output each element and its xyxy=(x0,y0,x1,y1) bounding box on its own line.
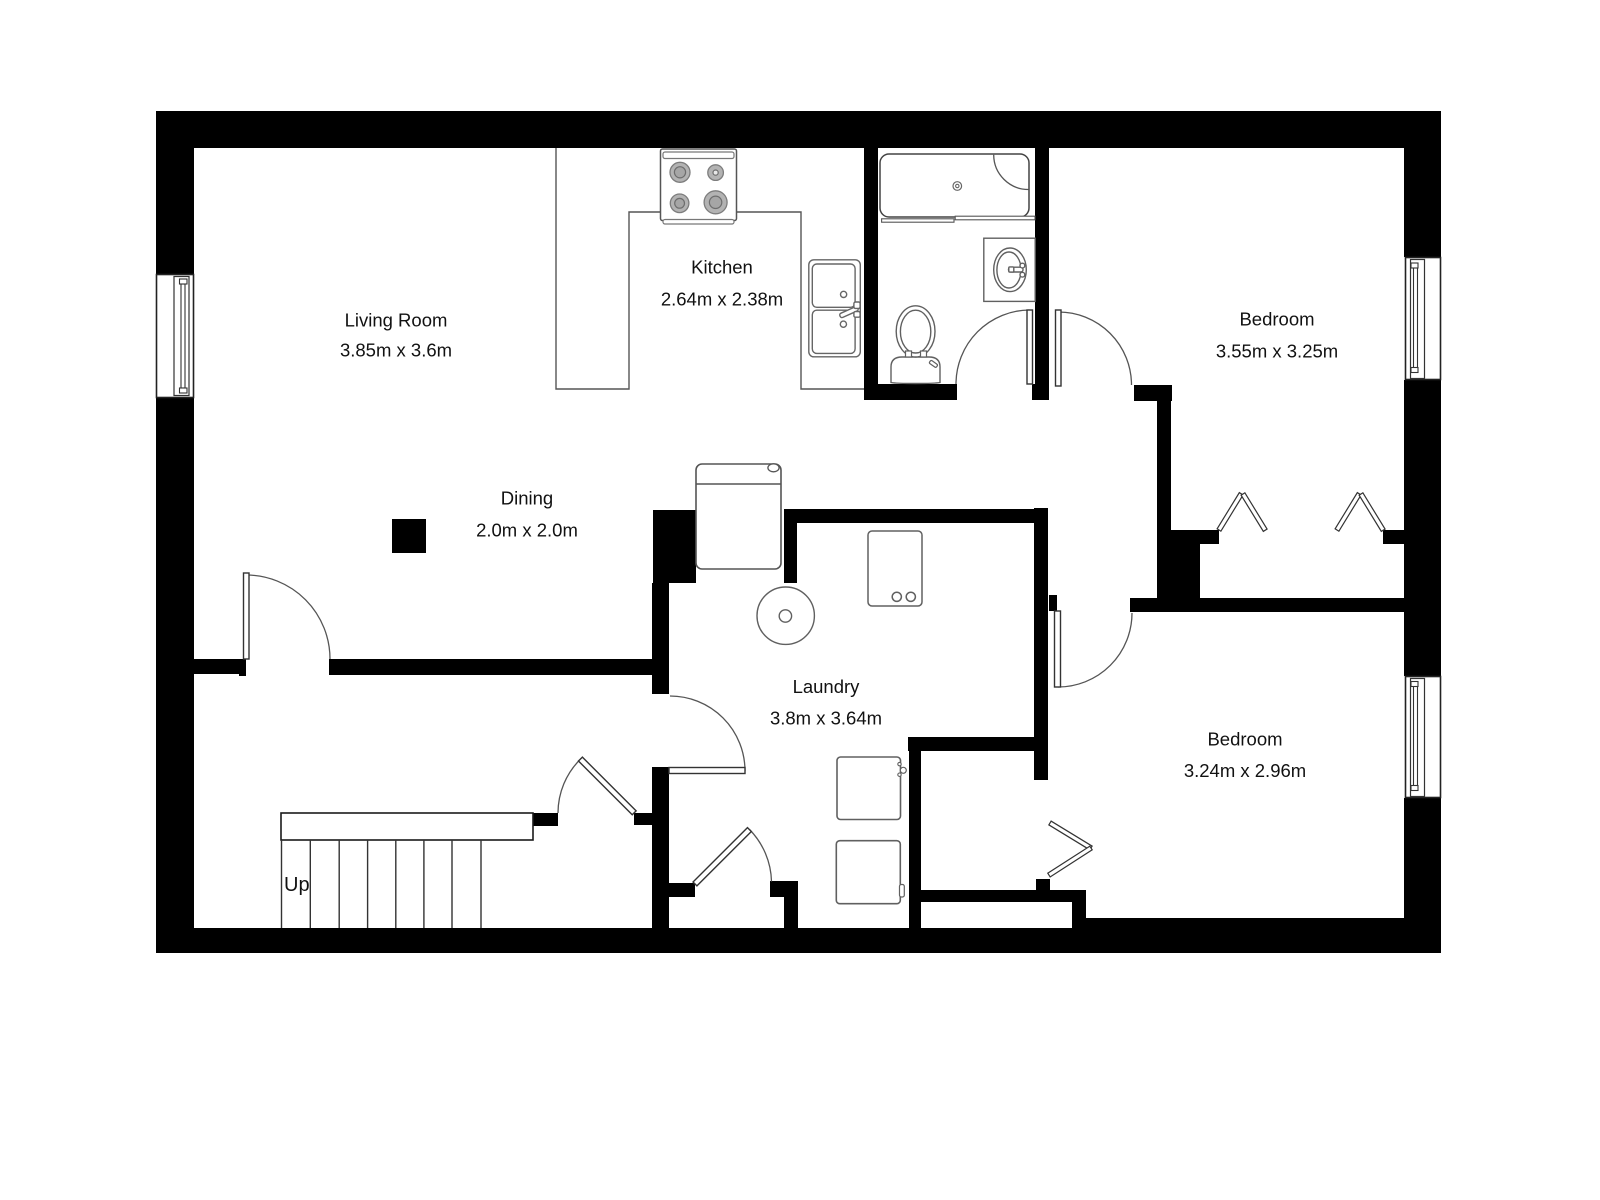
svg-text:Bedroom: Bedroom xyxy=(1207,729,1282,750)
svg-text:2.64m x 2.38m: 2.64m x 2.38m xyxy=(661,289,783,310)
svg-text:Bedroom: Bedroom xyxy=(1239,309,1314,330)
svg-text:2.0m x 2.0m: 2.0m x 2.0m xyxy=(476,520,578,541)
svg-text:Living Room: Living Room xyxy=(345,310,448,331)
svg-text:Dining: Dining xyxy=(501,488,553,509)
svg-text:3.55m x 3.25m: 3.55m x 3.25m xyxy=(1216,341,1338,362)
svg-text:3.8m x 3.64m: 3.8m x 3.64m xyxy=(770,708,882,729)
svg-text:3.24m x 2.96m: 3.24m x 2.96m xyxy=(1184,760,1306,781)
svg-text:Laundry: Laundry xyxy=(793,676,861,697)
svg-text:3.85m x 3.6m: 3.85m x 3.6m xyxy=(340,340,452,361)
svg-text:Kitchen: Kitchen xyxy=(691,257,753,278)
svg-text:Up: Up xyxy=(284,874,310,896)
